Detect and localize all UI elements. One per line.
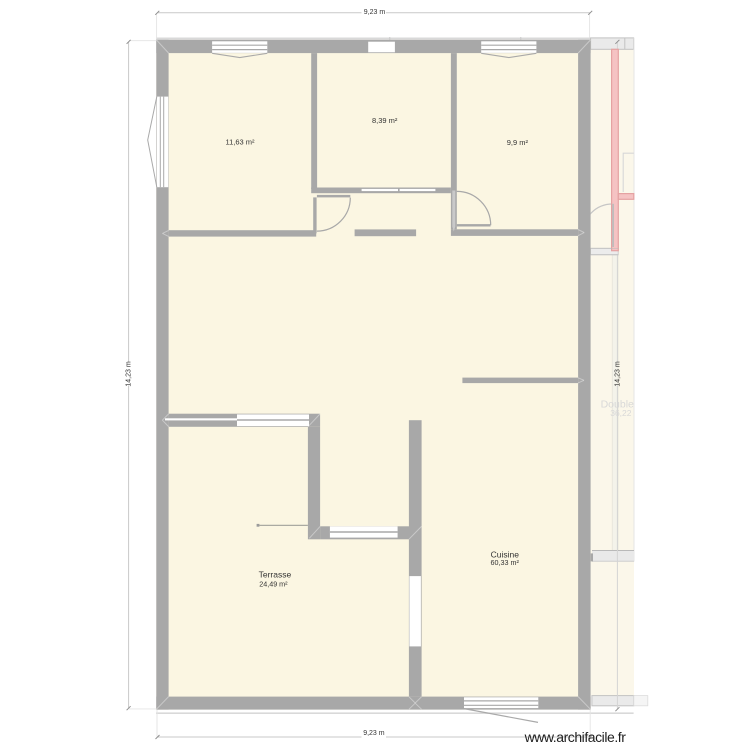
svg-text:9,23 m: 9,23 m (364, 9, 386, 16)
svg-text:11,63 m²: 11,63 m² (225, 137, 255, 146)
svg-text:60,33 m²: 60,33 m² (491, 558, 520, 567)
svg-text:14,23 m: 14,23 m (615, 361, 622, 386)
svg-text:8,39 m²: 8,39 m² (372, 116, 398, 125)
svg-text:14,23 m: 14,23 m (126, 361, 133, 386)
svg-text:www.archifacile.fr: www.archifacile.fr (524, 729, 627, 745)
svg-text:9,9 m²: 9,9 m² (507, 138, 529, 147)
svg-text:24,49 m²: 24,49 m² (259, 579, 288, 588)
svg-text:Terrasse: Terrasse (259, 570, 292, 580)
svg-text:9,23 m: 9,23 m (363, 730, 385, 737)
